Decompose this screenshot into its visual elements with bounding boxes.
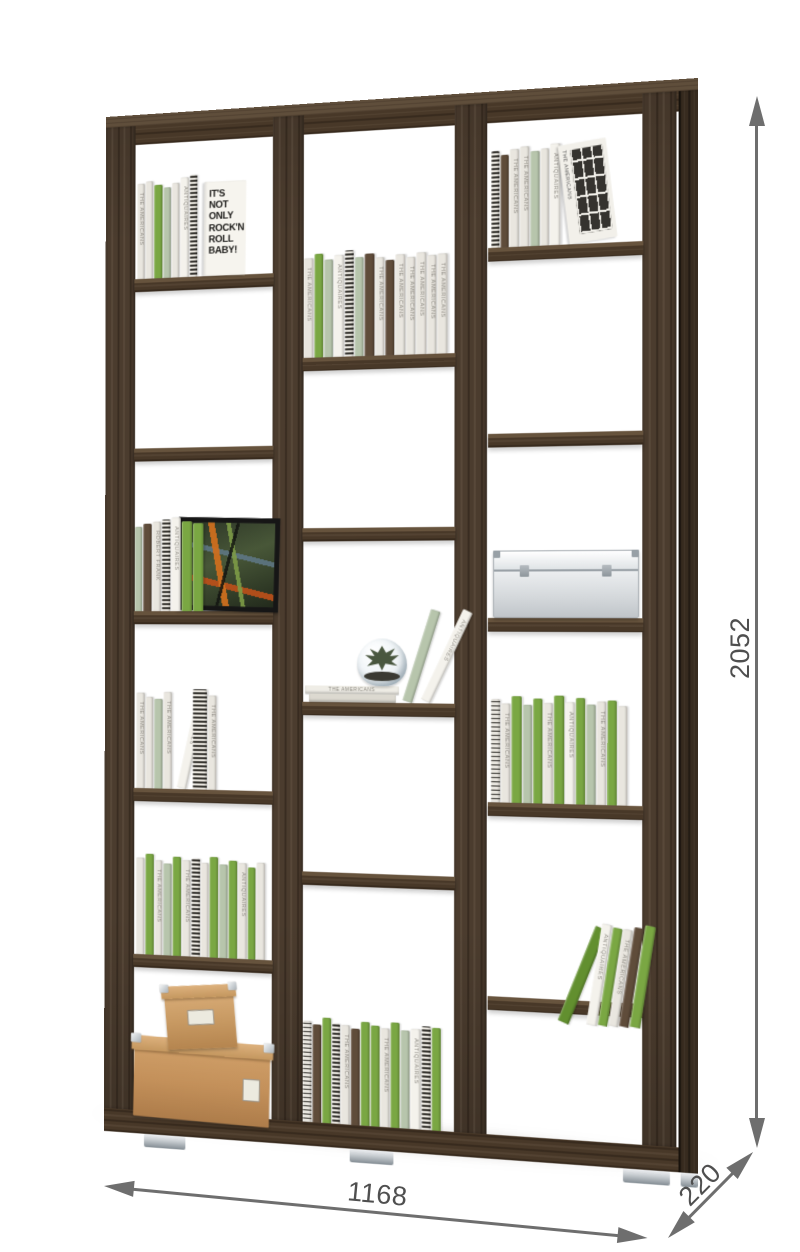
book-spine [586,704,595,804]
metal-box-lid [494,551,638,572]
book-spine [332,1023,340,1124]
photo-grid [570,144,612,234]
book-spine [530,151,539,246]
book-spine [322,1018,331,1124]
shelf-board [488,618,643,632]
stacked-book [309,694,396,703]
book-title: THE AMERICANS [156,869,162,949]
book-title: THE AMERICANS [382,1037,388,1121]
book-spine [154,699,163,789]
book-title: ANTIQUAIRES [336,264,342,351]
book-spine [135,527,143,611]
book-spine: THE AMERICANS [163,692,172,789]
bookshelf-unit: THE AMERICANSANTIQUAIRESIT'S NOTONLYROCK… [104,78,698,1189]
book-spine: THE AMERICANS [597,701,607,805]
chrome-corner-bracket [160,985,169,993]
shelf-board-edge [488,618,643,623]
book-spine [228,861,237,959]
book-title: THE AMERICANS [598,711,604,799]
book-spine [400,1030,409,1129]
height-dimension-axis [755,120,758,1124]
book-spine: THE AMERICANS [380,1028,389,1127]
book-spine [145,854,154,955]
book-title: THE AMERICANS [429,264,435,348]
book-title: THE AMERICANS [408,266,414,348]
metal-box-corner [493,551,500,558]
book-spine [154,185,163,279]
shelf-board [302,871,455,890]
book-title: ANTIQUAIRES [567,712,573,798]
book-title: THE AMERICANS [183,869,189,950]
book-spine [385,260,394,356]
metal-storage-box [493,550,639,619]
front-facing-book: IT'S NOTONLYROCK'NROLLBABY! [203,180,246,276]
book-spine [500,155,508,248]
book-title: THE AMERICANS [511,158,517,240]
book-spine: THE AMERICANS [375,257,384,356]
book-spine [163,863,172,955]
book-spine: THE AMERICANS [406,257,415,355]
vertical-panel [104,126,136,1110]
book-spine [209,857,218,958]
book-spine [193,689,207,790]
book-spine: THE AMERICANS [416,252,426,354]
book-title: THE AMERICANS [342,1034,348,1118]
cardboard-box-small [163,984,237,1050]
book-spine [162,519,171,611]
book-spine [172,857,181,956]
metal-box-latch [602,565,611,577]
book-spine [541,148,549,246]
cardboard-box-lid [161,984,237,999]
book-spine: THE AMERICANS [501,703,510,802]
book-title: THE AMERICANS [138,702,144,783]
metal-box-latch [520,565,529,577]
book-title: ANTIQUAIRES [239,872,245,953]
book-spine [182,521,193,611]
book-spine [146,697,154,789]
book-spine: ANTIQUAIRES [180,177,189,277]
book-spine [533,698,542,803]
book-spine: THE AMERICANS [304,258,314,358]
book-spine: ANTIQUAIRES [238,863,247,959]
book-title: THE AMERICANS [306,267,312,351]
terrarium-glass-bowl [357,638,407,686]
book-spine [324,259,333,357]
book-spine [146,181,154,279]
book-spine [511,696,521,803]
shelf-board [302,527,455,542]
shelf-board-edge [488,431,643,439]
book-spine [361,1022,370,1126]
shelf-board-edge [302,871,455,881]
shelf-board [302,702,455,718]
book-spine [422,1026,431,1130]
book-spine [371,1025,380,1126]
book-spine: THE AMERICANS [137,184,145,280]
shelf-board-edge [302,527,455,533]
book-title: THE AMERICANS [138,193,144,273]
book-spine [607,700,617,805]
book-spine: THE AMERICANS [437,253,447,354]
vertical-panel [272,115,304,1121]
book-spine [351,1028,360,1125]
book-spine: THE AMERICANS [510,149,519,247]
book-title: THE AMERICANS [397,263,403,348]
chrome-corner-bracket [227,982,236,991]
book-title: THE AMERICANS [522,156,528,241]
book-spine: ANTIQUAIRES [171,517,181,611]
book-spine: THE AMERICANS [395,254,405,355]
front-book-line: BABY! [208,244,241,257]
book-spine [193,523,204,611]
book-title: THE AMERICANS [418,261,424,348]
book-spine [345,250,354,357]
book-title: THE AMERICANS [503,713,509,796]
book-spine: THE AMERICANS [520,146,529,247]
chrome-corner-bracket [131,1033,141,1043]
book-title: ANTIQUAIRES [412,1038,418,1123]
photo-album-book: THE AMERICANS [558,137,618,244]
box-label-holder [242,1078,260,1102]
terrarium-soil [364,672,400,682]
book-spine [390,1022,399,1128]
book-spine: THE AMERICANS [427,255,436,354]
book-spine [219,864,228,958]
book-title: THE AMERICANS [377,266,383,349]
book-title: THE AMERICANS [209,705,215,784]
metal-box-corner [632,550,639,558]
book-spine [143,524,152,612]
width-dimension-line: 1168 [104,1186,648,1238]
book-spine [201,863,209,958]
box-label-holder [186,1009,214,1025]
arrow-up-icon [749,96,765,126]
book-spine [312,1024,321,1123]
book-spine [303,1021,312,1123]
book-title: ROBERT FRANK [154,531,160,606]
book-spine [248,867,256,959]
shelf-board [134,446,273,462]
shelf-board-edge [134,446,273,453]
book-spine: THE AMERICANS [208,695,217,790]
book-spine [355,257,364,356]
book-spine: THE AMERICANS [182,860,191,957]
arrow-down-icon [749,1118,765,1148]
right-side-panel [679,90,698,1174]
height-dimension-label: 2052 [726,584,754,712]
book-spine [163,187,171,278]
book-title: THE AMERICANS [439,263,445,348]
book-spine [172,183,180,278]
book-spine [136,857,145,954]
shelf-board [488,431,643,448]
book-spine [314,254,323,358]
front-book-line: IT'S NOT [209,187,243,211]
book-spine: THE AMERICANS [543,703,552,804]
book-spine [576,698,585,805]
vertical-panel [642,91,676,1147]
book-spine: ROBERT FRANK [152,522,161,612]
book-spine: THE AMERICANS [136,693,145,789]
book-spine [554,696,564,805]
book-spine: THE AMERICANS [341,1025,350,1125]
book-spine [491,151,499,248]
front-book-line: ROCK'N [209,221,242,234]
book-spine: THE AMERICANS [155,860,163,955]
book-spine [491,699,500,802]
succulent-plant [365,646,399,671]
shelf-board [134,611,273,624]
book-spine: ANTIQUAIRES [410,1029,420,1130]
book-spine [618,706,628,806]
cardboard-box-large [133,1035,270,1128]
book-spine [432,1028,441,1131]
book-spine: ANTIQUAIRES [334,255,344,357]
book-title: THE AMERICANS [165,701,171,783]
chrome-corner-bracket [264,1043,275,1053]
book-spine: ANTIQUAIRES [565,702,574,804]
book-title: ANTIQUAIRES [552,153,558,239]
book-spine [523,705,532,804]
book-spine [190,175,198,277]
book-title: THE AMERICANS [545,712,551,797]
shelf-board [133,788,273,805]
book-title: ANTIQUAIRES [173,526,179,605]
book-title: ANTIQUAIRES [182,186,188,271]
book-spine [256,863,265,961]
book-spine [191,858,200,957]
book-spine [364,253,374,356]
